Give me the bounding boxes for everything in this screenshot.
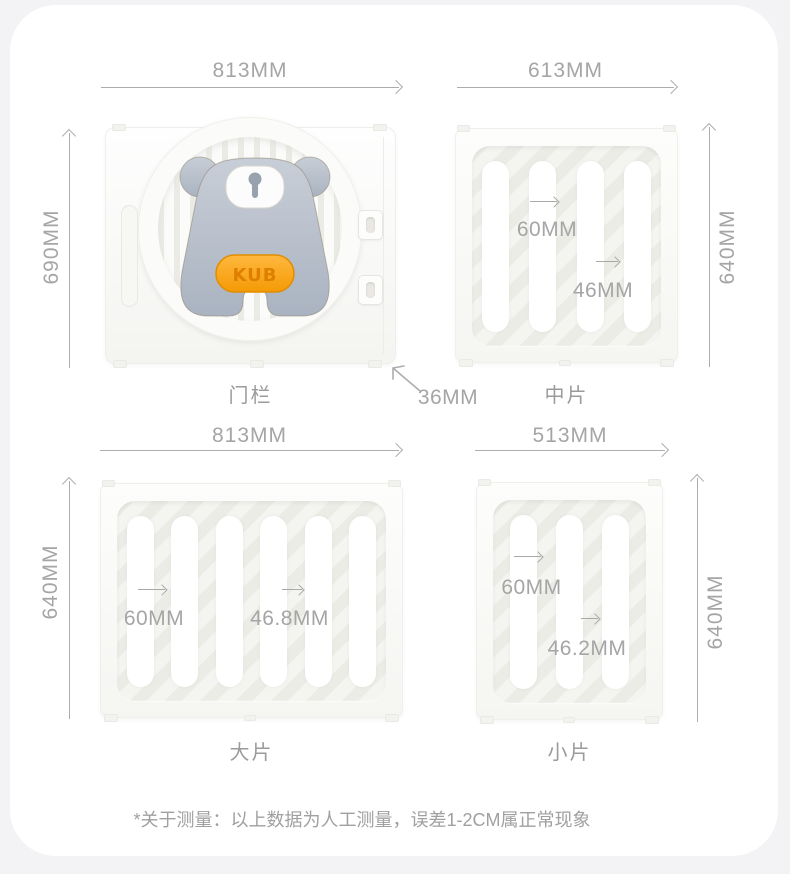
panel-foot (104, 714, 118, 722)
large-part-label: 大片 (100, 736, 403, 765)
large-slot-pitch-arrow-icon (138, 589, 165, 590)
small-slot-pitch-label: 60MM (496, 576, 567, 600)
panel-slot (510, 515, 537, 689)
panel-foot (660, 359, 674, 367)
bear-nose-stem (252, 181, 258, 198)
door-top-left-lug (112, 124, 126, 131)
panel-foot (244, 715, 256, 721)
door-foot (250, 360, 264, 368)
large-width-label: 813MM (100, 424, 399, 448)
small-slot-gap-arrow-icon (581, 618, 598, 619)
small-height-arrow-icon (697, 478, 698, 722)
panel-lug (457, 125, 470, 132)
panel-lug (388, 480, 401, 487)
panel-slot (624, 161, 651, 332)
large-slot-gap-arrow-icon (282, 589, 302, 590)
panel-foot (645, 716, 659, 724)
bear-graphic: KUB (175, 152, 335, 322)
panel-lug (102, 480, 115, 487)
small-width-label: 513MM (475, 424, 665, 448)
middle-slot-pitch-label: 60MM (511, 218, 583, 242)
panel-slot (529, 161, 556, 332)
panel-slot (349, 516, 376, 687)
middle-height-arrow-icon (709, 127, 710, 367)
large-panel (100, 483, 403, 718)
panel-slot (171, 516, 198, 687)
large-slot-pitch-label: 60MM (119, 607, 189, 631)
middle-width-label: 613MM (457, 59, 674, 83)
door-foot (368, 360, 382, 368)
large-height-label: 640MM (39, 544, 63, 619)
door-top-right-lug (373, 124, 387, 131)
panel-slot (556, 515, 583, 689)
large-height-arrow-icon (69, 481, 70, 719)
panel-foot (459, 359, 473, 367)
large-slot-gap-label: 46.8MM (246, 607, 333, 631)
door-height-arrow-icon (69, 133, 70, 368)
panel-lug (648, 479, 661, 486)
door-latch-bar (121, 205, 138, 307)
thickness-pointer-arrow-icon (386, 361, 426, 395)
small-panel (476, 482, 663, 720)
door-frame-seam (383, 137, 384, 354)
small-slot-pitch-arrow-icon (514, 556, 541, 557)
panel-foot (563, 717, 575, 723)
panel-lug (663, 125, 676, 132)
middle-slot-pitch-arrow-icon (530, 201, 557, 202)
small-height-label: 640MM (704, 574, 728, 649)
panel-slots (510, 515, 629, 689)
middle-part-label: 中片 (455, 379, 678, 408)
small-width-arrow-icon (475, 450, 665, 451)
door-height-label: 690MM (40, 209, 64, 284)
middle-width-arrow-icon (457, 87, 674, 88)
door-hinge-top (358, 210, 383, 240)
door-hinge-bottom (358, 275, 383, 305)
kub-badge-text: KUB (233, 265, 278, 286)
panel-slot (127, 516, 154, 687)
middle-height-label: 640MM (716, 209, 740, 284)
panel-slot (216, 516, 243, 687)
measurement-note: *关于测量：以上数据为人工测量，误差1-2CM属正常现象 (0, 806, 790, 832)
product-dimension-diagram: 813MM 690MM (0, 0, 790, 874)
panel-lug (478, 479, 491, 486)
door-foot (113, 360, 127, 368)
panel-slot (482, 161, 509, 332)
middle-slot-gap-label: 46MM (566, 279, 640, 303)
large-width-arrow-icon (100, 450, 399, 451)
small-slot-gap-label: 46.2MM (543, 637, 631, 661)
panel-foot (559, 360, 571, 366)
door-width-label: 813MM (101, 59, 399, 83)
panel-slot (602, 515, 629, 689)
panel-slot (577, 161, 604, 332)
panel-slot (260, 516, 287, 687)
panel-slot (305, 516, 332, 687)
small-part-label: 小片 (476, 736, 663, 765)
middle-panel (455, 128, 678, 363)
door-part-label: 门栏 (105, 379, 396, 408)
door-width-arrow-icon (101, 87, 399, 88)
panel-slots (127, 516, 376, 687)
middle-slot-gap-arrow-icon (596, 261, 618, 262)
panel-foot (480, 716, 494, 724)
door-panel: KUB (105, 127, 396, 364)
panel-slots (482, 161, 651, 332)
panel-foot (385, 714, 399, 722)
